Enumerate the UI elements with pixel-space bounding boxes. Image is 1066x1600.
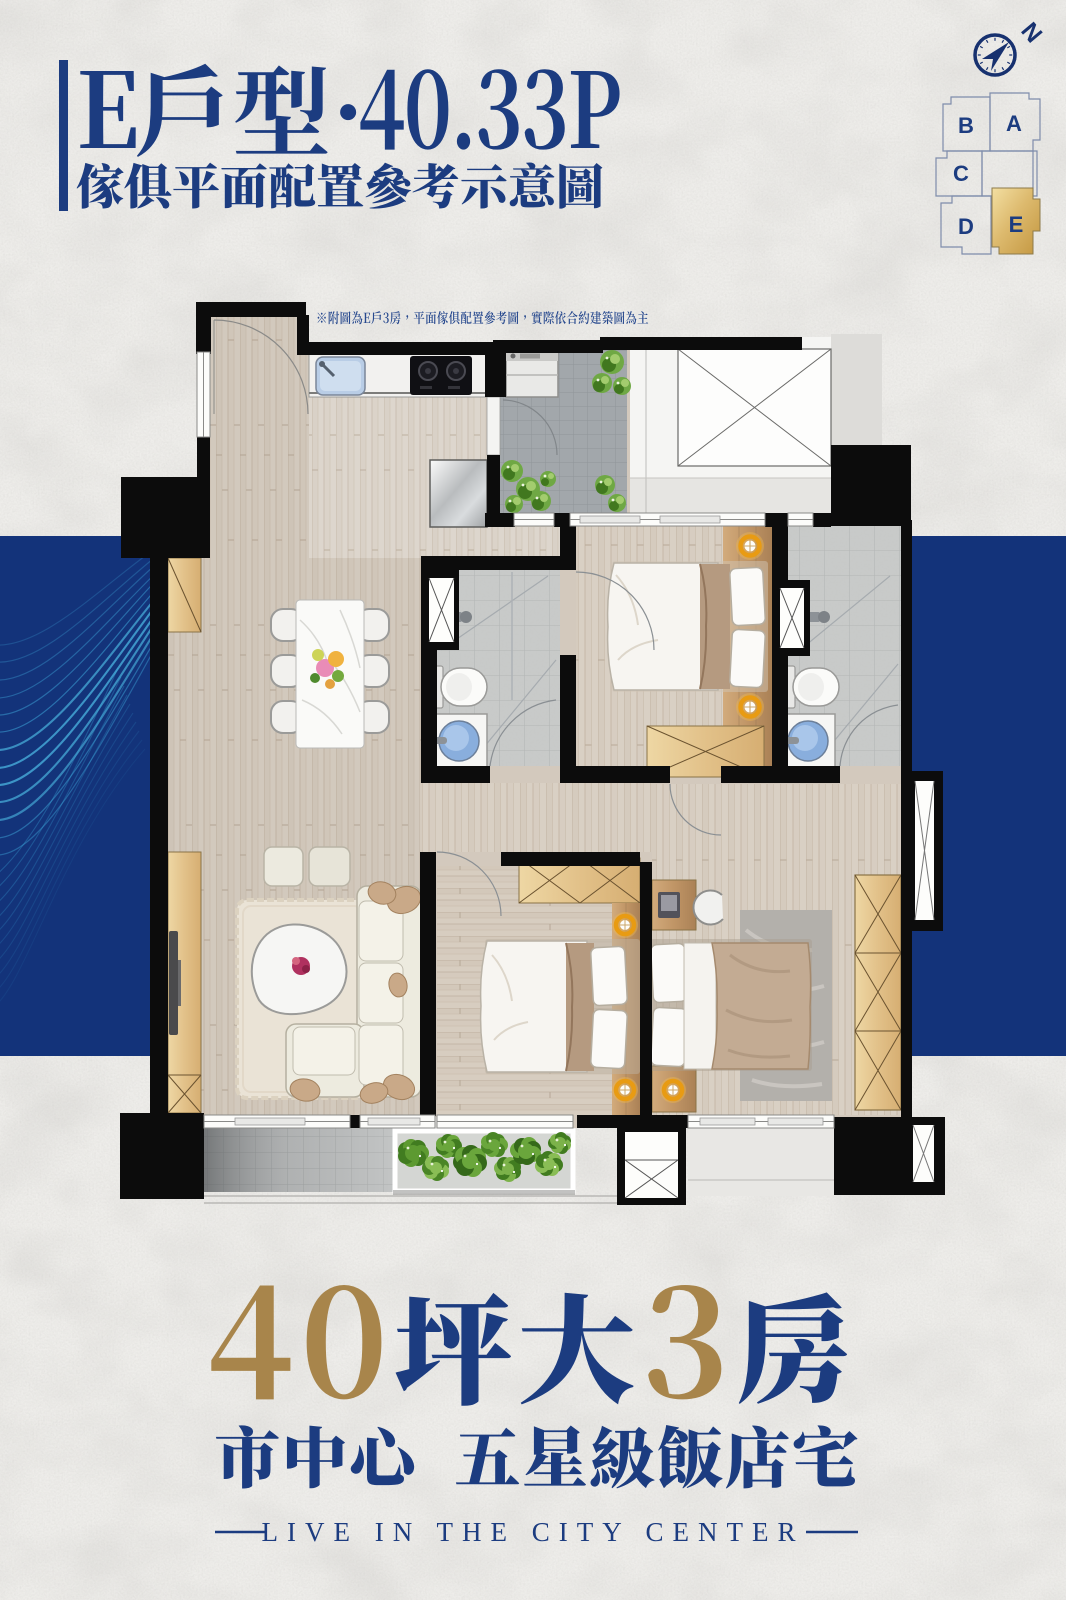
svg-text:C: C bbox=[953, 161, 969, 186]
svg-text:LIVE IN THE CITY CENTER: LIVE IN THE CITY CENTER bbox=[262, 1517, 805, 1547]
svg-text:A: A bbox=[1006, 111, 1022, 136]
svg-text:E: E bbox=[1009, 212, 1024, 237]
svg-text:D: D bbox=[958, 214, 974, 239]
svg-text:B: B bbox=[958, 113, 974, 138]
